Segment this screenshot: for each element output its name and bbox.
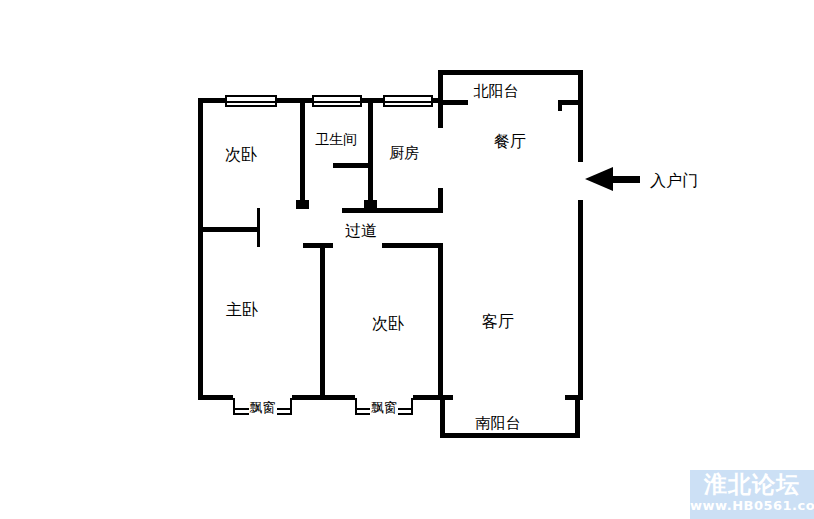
entry-arrow-shaft xyxy=(611,176,640,183)
wall-bathroom-left xyxy=(300,103,305,208)
window-mullion xyxy=(385,101,431,103)
wall-corridor-top xyxy=(342,208,443,213)
watermark: 淮北论坛 www.HB0561.com xyxy=(690,470,814,519)
bay-window-label: 飘窗 xyxy=(249,399,277,417)
wall-corridor-bottom xyxy=(382,243,443,248)
entry-arrow-icon xyxy=(585,167,613,191)
wall-bottom xyxy=(198,395,233,400)
room-label-bathroom: 卫生间 xyxy=(315,132,357,146)
window-mullion xyxy=(314,101,360,103)
window-symbol xyxy=(383,95,433,107)
room-label-kitchen: 厨房 xyxy=(389,146,419,161)
wall-right-exterior-upper xyxy=(578,70,583,162)
wall-north-balcony-left xyxy=(438,70,443,128)
entry-door-label: 入户门 xyxy=(650,173,698,189)
watermark-title: 淮北论坛 xyxy=(690,470,814,498)
wall-south-balcony-right xyxy=(575,398,580,438)
wall-bottom xyxy=(292,395,355,400)
wall-bottom xyxy=(413,395,453,400)
wall-bedroom-divider xyxy=(320,245,325,400)
wall-right-exterior-lower xyxy=(578,200,583,400)
window-mullion xyxy=(227,101,275,103)
wall-north-balcony-bottom xyxy=(438,100,468,105)
room-label-living: 客厅 xyxy=(482,314,514,330)
watermark-url: www.HB0561.com xyxy=(690,498,814,513)
room-label-south-balcony: 南阳台 xyxy=(476,416,521,431)
room-label-bedroom-bottom: 次卧 xyxy=(372,316,404,332)
room-label-bedroom-top: 次卧 xyxy=(225,147,257,163)
wall-cap xyxy=(296,200,309,209)
room-label-master-bedroom: 主卧 xyxy=(226,302,258,318)
bay-window-label: 飘窗 xyxy=(370,399,398,417)
wall-kitchen-dining xyxy=(438,188,443,213)
wall-south-balcony-bottom xyxy=(440,433,580,438)
floor-plan: 飘窗 飘窗 次卧 卫生间 厨房 北阳台 餐厅 过道 主卧 次卧 客厅 南阳台 入… xyxy=(0,0,814,519)
wall-bedroom-top-south xyxy=(198,227,258,232)
wall-south-balcony-left xyxy=(440,398,445,438)
wall-top xyxy=(198,98,227,103)
room-label-dining: 餐厅 xyxy=(494,134,526,150)
wall-corridor-bottom xyxy=(303,243,333,248)
wall-north-balcony-top xyxy=(438,70,583,75)
bay-window: 飘窗 xyxy=(233,398,292,415)
room-label-corridor: 过道 xyxy=(345,223,377,239)
door-leaf xyxy=(257,208,260,247)
wall-bathroom-right xyxy=(368,98,373,208)
room-label-north-balcony: 北阳台 xyxy=(474,84,519,99)
wall-north-balcony-stub xyxy=(558,100,562,111)
wall-bathroom-partition xyxy=(333,163,373,168)
bay-window: 飘窗 xyxy=(355,398,413,415)
window-symbol xyxy=(225,95,277,107)
wall-bottom xyxy=(565,395,583,400)
wall-living-west xyxy=(438,243,443,400)
wall-left-exterior xyxy=(198,98,203,400)
wall-top xyxy=(275,98,314,103)
window-symbol xyxy=(312,95,362,107)
